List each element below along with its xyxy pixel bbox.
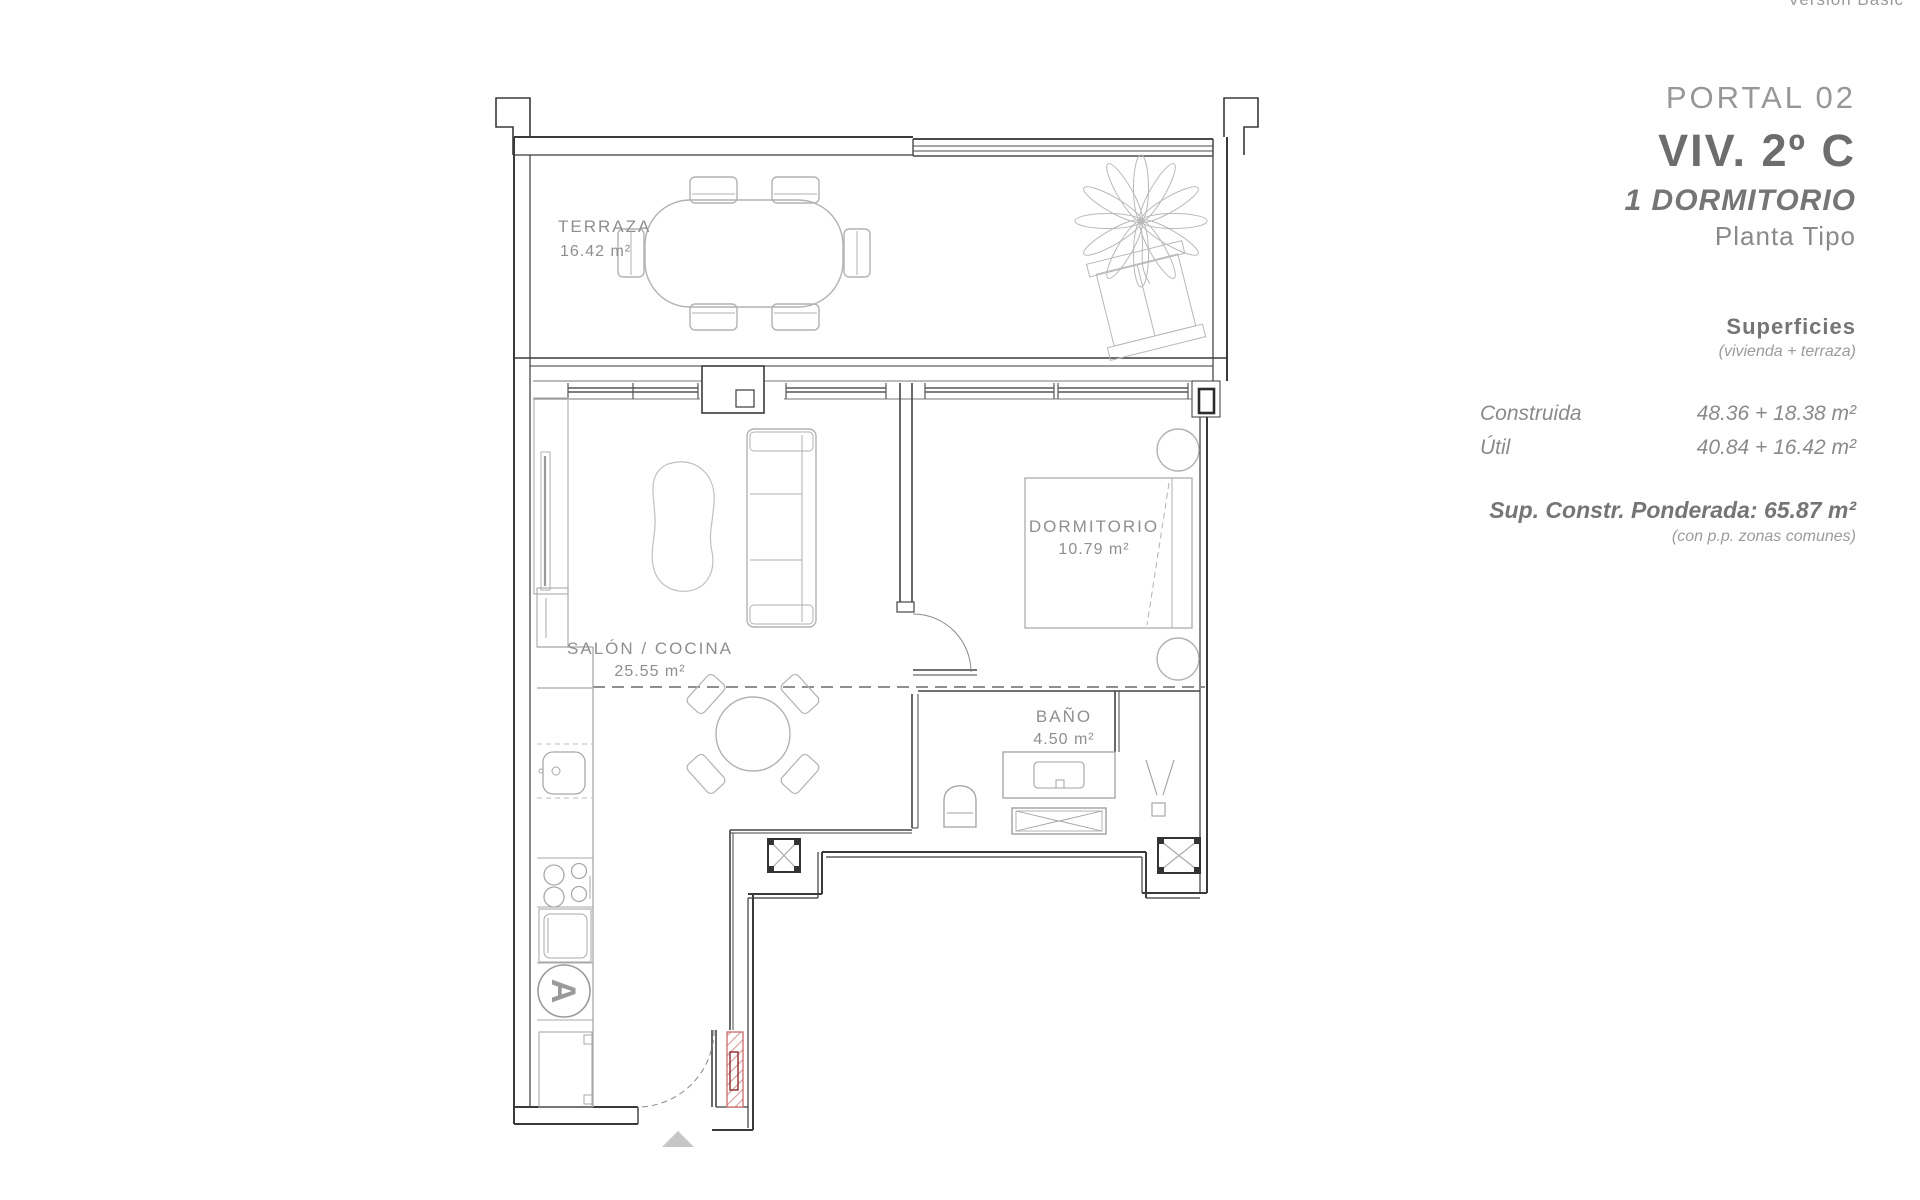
room-area-terraza: 16.42 m² [560,243,631,260]
room-label-bano: BAÑO [1036,707,1092,726]
interior-walls [637,383,1200,1107]
salon-furniture [534,398,821,795]
room-area-dormitorio: 10.79 m² [1058,541,1129,558]
room-area-salon: 25.55 m² [614,663,685,680]
weighted-surface-note: (con p.p. zonas comunes) [1434,528,1856,546]
surface-row-value: 48.36 + 18.38 m² [1697,397,1856,431]
terrace-plant [1075,155,1207,360]
floorplan-page: A [0,0,1920,1200]
bathroom-fixtures [944,752,1174,834]
room-label-salon: SALÓN / COCINA [567,639,733,658]
column-marker [1158,838,1200,873]
terrace-railing [913,139,1213,156]
apartment-type: 1 DORMITORIO [1434,184,1856,218]
room-area-bano: 4.50 m² [1033,731,1094,748]
column-marker [768,839,800,872]
floor-type: Planta Tipo [1434,221,1856,252]
weighted-surface: Sup. Constr. Ponderada: 65.87 m² [1434,497,1856,524]
appliance-badge: A [538,965,590,1017]
surface-row-label: Construida [1480,397,1582,431]
surface-row-label: Útil [1480,431,1510,465]
portal-title: PORTAL 02 [1434,80,1856,116]
surface-row-construida: Construida 48.36 + 18.38 m² [1434,397,1856,431]
room-labels: TERRAZA 16.42 m² SALÓN / COCINA 25.55 m²… [558,217,1159,748]
entry-fire-door-marker [727,1032,743,1107]
appliance-badge-letter: A [544,979,582,1004]
entry-direction-arrow-icon [662,1131,694,1147]
window-wall [533,366,1192,413]
kitchen-counter [537,588,593,1107]
room-label-terraza: TERRAZA [558,217,651,236]
unit-title: VIV. 2º C [1434,125,1856,177]
terrace-dining-set [618,177,870,330]
surfaces-table: Construida 48.36 + 18.38 m² Útil 40.84 +… [1434,397,1856,465]
info-panel: PORTAL 02 VIV. 2º C 1 DORMITORIO Planta … [1434,0,1920,546]
surfaces-title: Superficies [1434,314,1856,340]
surface-row-value: 40.84 + 16.42 m² [1697,431,1856,465]
surface-row-util: Útil 40.84 + 16.42 m² [1434,431,1856,465]
surfaces-subtitle: (vivienda + terraza) [1434,343,1856,361]
room-label-dormitorio: DORMITORIO [1029,517,1159,536]
